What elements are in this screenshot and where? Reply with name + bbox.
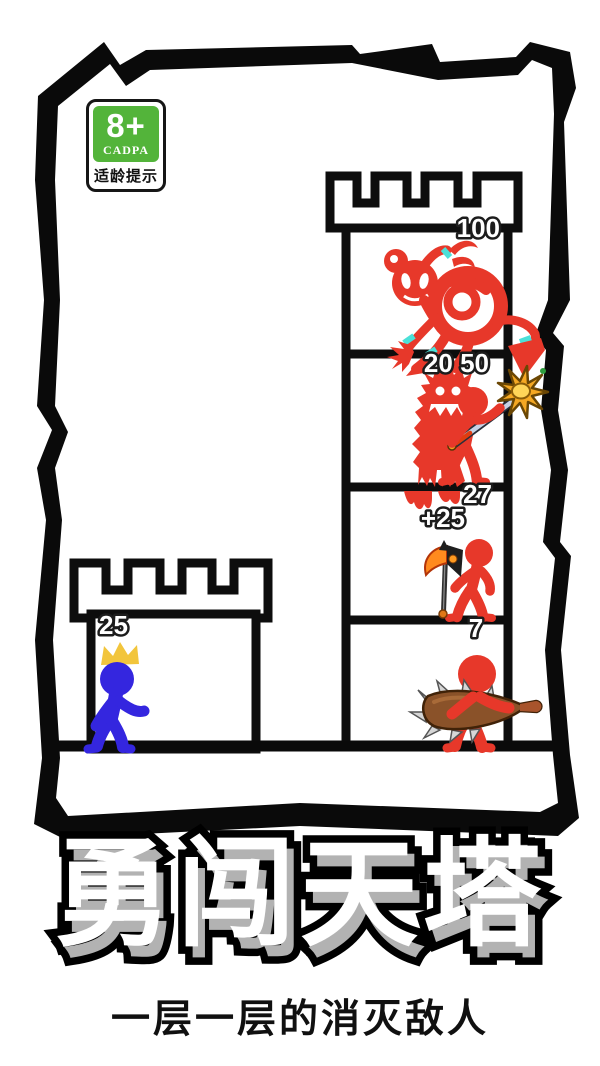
game-subtitle: 一层一层的消灭敌人 bbox=[0, 988, 600, 1044]
monster-eye bbox=[436, 387, 445, 396]
hp-label-floor4: 7 bbox=[469, 613, 483, 643]
hp-label-floor1: 100 bbox=[457, 213, 500, 243]
hp-label-player: 25 bbox=[99, 610, 128, 640]
cadpa-org-label: CADPA bbox=[93, 143, 159, 158]
hp-label-floor2: 20 50 bbox=[424, 348, 489, 378]
game-title-face: 勇闯天塔 bbox=[0, 828, 600, 964]
game-promo-screenshot: 100 20 50 27 +25 7 25 8+ CADPA 适龄提示 勇闯天塔… bbox=[0, 0, 600, 1066]
cadpa-age-badge: 8+ CADPA 适龄提示 bbox=[86, 99, 166, 192]
monster-eye bbox=[452, 387, 461, 396]
bonus-label-floor3: +25 bbox=[421, 503, 465, 533]
hp-label-floor3: 27 bbox=[463, 479, 492, 509]
game-title: 勇闯天塔 勇闯天塔 勇闯天塔 勇闯天塔 bbox=[0, 828, 600, 988]
age-hint-label: 适龄提示 bbox=[93, 165, 159, 186]
age-rating: 8+ bbox=[93, 109, 159, 142]
cadpa-green-box: 8+ CADPA bbox=[93, 106, 159, 162]
